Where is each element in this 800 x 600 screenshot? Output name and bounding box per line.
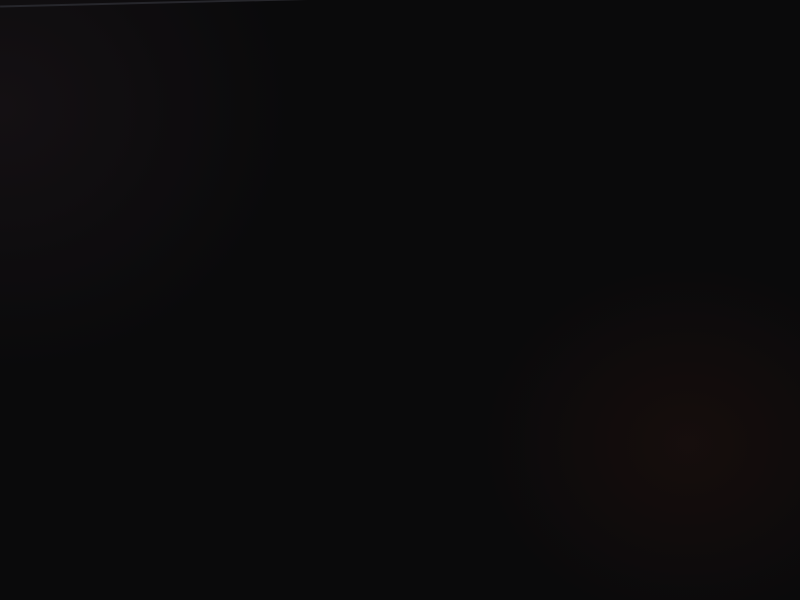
dark-room-background — [0, 0, 800, 600]
notebook-photo: e — [0, 0, 800, 600]
